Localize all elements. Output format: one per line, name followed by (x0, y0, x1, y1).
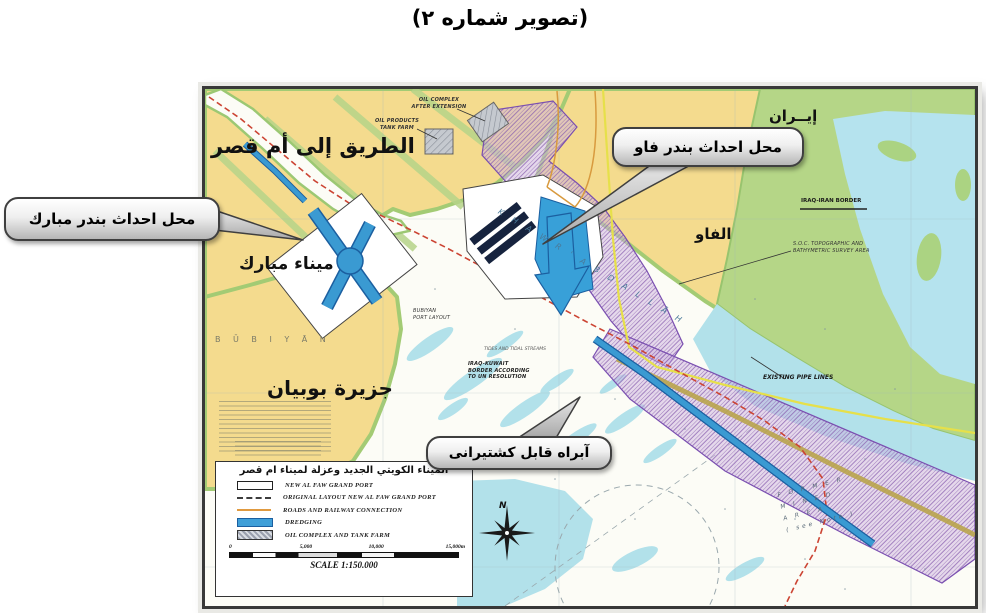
label-iraq-kuwait-border: IRAQ-KUWAIT BORDER ACCORDING TO UN RESOL… (468, 361, 530, 381)
callout-navigable-waterway: آبراه قابل كشتيرانى (426, 436, 612, 470)
legend-item-label: OIL COMPLEX AND TANK FARM (285, 532, 390, 539)
scale-bar (229, 552, 459, 558)
legend-item: ROADS AND RAILWAY CONNECTION (237, 504, 467, 517)
callout-waterway-label: آبراه قابل كشتيرانى (449, 445, 590, 461)
label-bubiyan-latin: B Ū B I Y Ā N (215, 335, 331, 345)
label-bubiyan-port-layout: BUBIYAN PORT LAYOUT (413, 308, 450, 321)
map-legend: الميناء الكويتي الجديد وعزلة لميناء ام ق… (215, 461, 473, 597)
callout-mubarak-label: محل احداث بندر مبارك (29, 210, 195, 228)
dashed-line-swatch (237, 497, 271, 499)
legend-item-label: NEW AL FAW GRAND PORT (285, 482, 373, 489)
gray-hatch-swatch (237, 530, 273, 540)
callout-mubarak-port: محل احداث بندر مبارك (4, 197, 220, 241)
legend-item: OIL COMPLEX AND TANK FARM (237, 529, 467, 542)
scale-tick: 15,000m (446, 544, 465, 550)
legend-item: NEW AL FAW GRAND PORT (237, 479, 467, 492)
label-mubarak-port: ميناء مبارك (239, 253, 334, 275)
callout-faw-port: محل احداث بندر فاو (612, 127, 804, 167)
label-existing-pipe-lines: EXISTING PIPE LINES (763, 374, 833, 382)
scale-tick: 5,000 (300, 544, 312, 550)
scale-text: SCALE 1:150.000 (221, 560, 467, 570)
label-bubiyan-island: جزيرة بوبيان (267, 375, 393, 401)
legend-item-label: DREDGING (285, 519, 322, 526)
figure-page: (تصوير شماره ۲) (0, 0, 986, 613)
legend-item-label: ORIGINAL LAYOUT NEW AL FAW GRAND PORT (283, 494, 436, 501)
legend-item: DREDGING (237, 517, 467, 530)
label-tides: TIDES AND TIDAL STREAMS (484, 347, 546, 353)
compass-north-label: N (499, 501, 507, 513)
legend-item-label: ROADS AND RAILWAY CONNECTION (283, 507, 402, 514)
label-iran: إيــران (769, 107, 817, 127)
orange-line-swatch (237, 509, 271, 511)
label-iraq-iran-border: IRAQ-IRAN BORDER (801, 198, 861, 205)
chart-note-block-small (235, 441, 321, 457)
label-oil-products-tank-farm: OIL PRODUCTS TANK FARM (367, 118, 427, 131)
label-oil-complex: OIL COMPLEX AFTER EXTENSION (403, 97, 475, 110)
blue-fill-swatch (237, 518, 273, 527)
callout-faw-label: محل احداث بندر فاو (634, 138, 782, 156)
nautical-chart: الطريق إلى أم قصر ميناء مبارك جزيرة بوبي… (202, 86, 978, 609)
scale-tick: 10,000 (369, 544, 384, 550)
chart-content: الطريق إلى أم قصر ميناء مبارك جزيرة بوبي… (205, 89, 975, 606)
label-road-to-umm-qasr: الطريق إلى أم قصر (211, 133, 415, 160)
oil-tank-farm-square (425, 129, 453, 154)
scale-ticks: 0 5,000 10,000 15,000m (221, 544, 467, 552)
label-al-faw: الفاو (695, 225, 732, 245)
label-soc-survey-area: S.O.C. TOPOGRAPHIC AND BATHYMETRIC SURVE… (793, 241, 913, 254)
legend-item: ORIGINAL LAYOUT NEW AL FAW GRAND PORT (237, 492, 467, 505)
figure-title: (تصوير شماره ۲) (360, 6, 640, 30)
port-outline-swatch (237, 481, 273, 490)
scale-tick: 0 (229, 544, 232, 550)
